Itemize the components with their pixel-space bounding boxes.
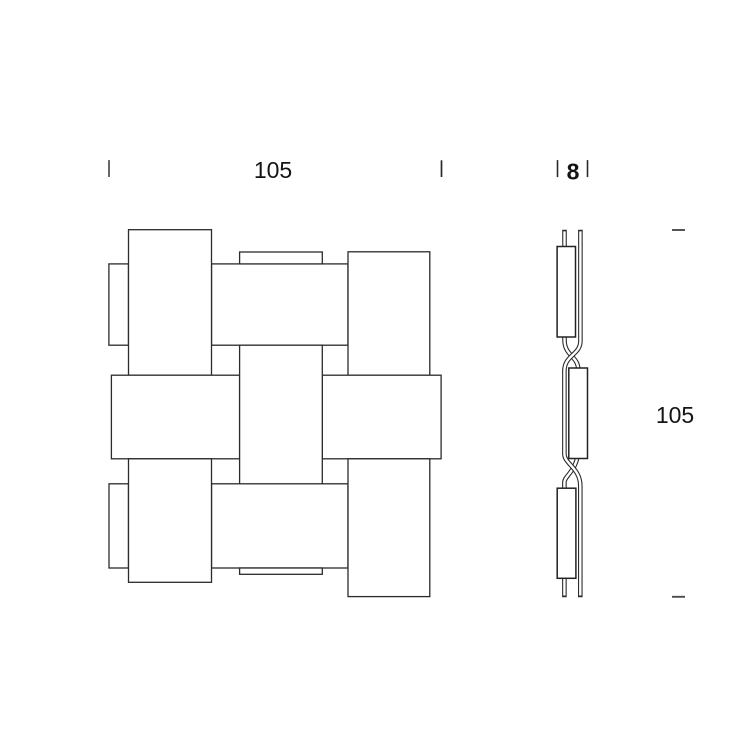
- svg-text:105: 105: [656, 402, 694, 428]
- svg-text:105: 105: [254, 157, 292, 183]
- svg-text:8: 8: [567, 158, 580, 184]
